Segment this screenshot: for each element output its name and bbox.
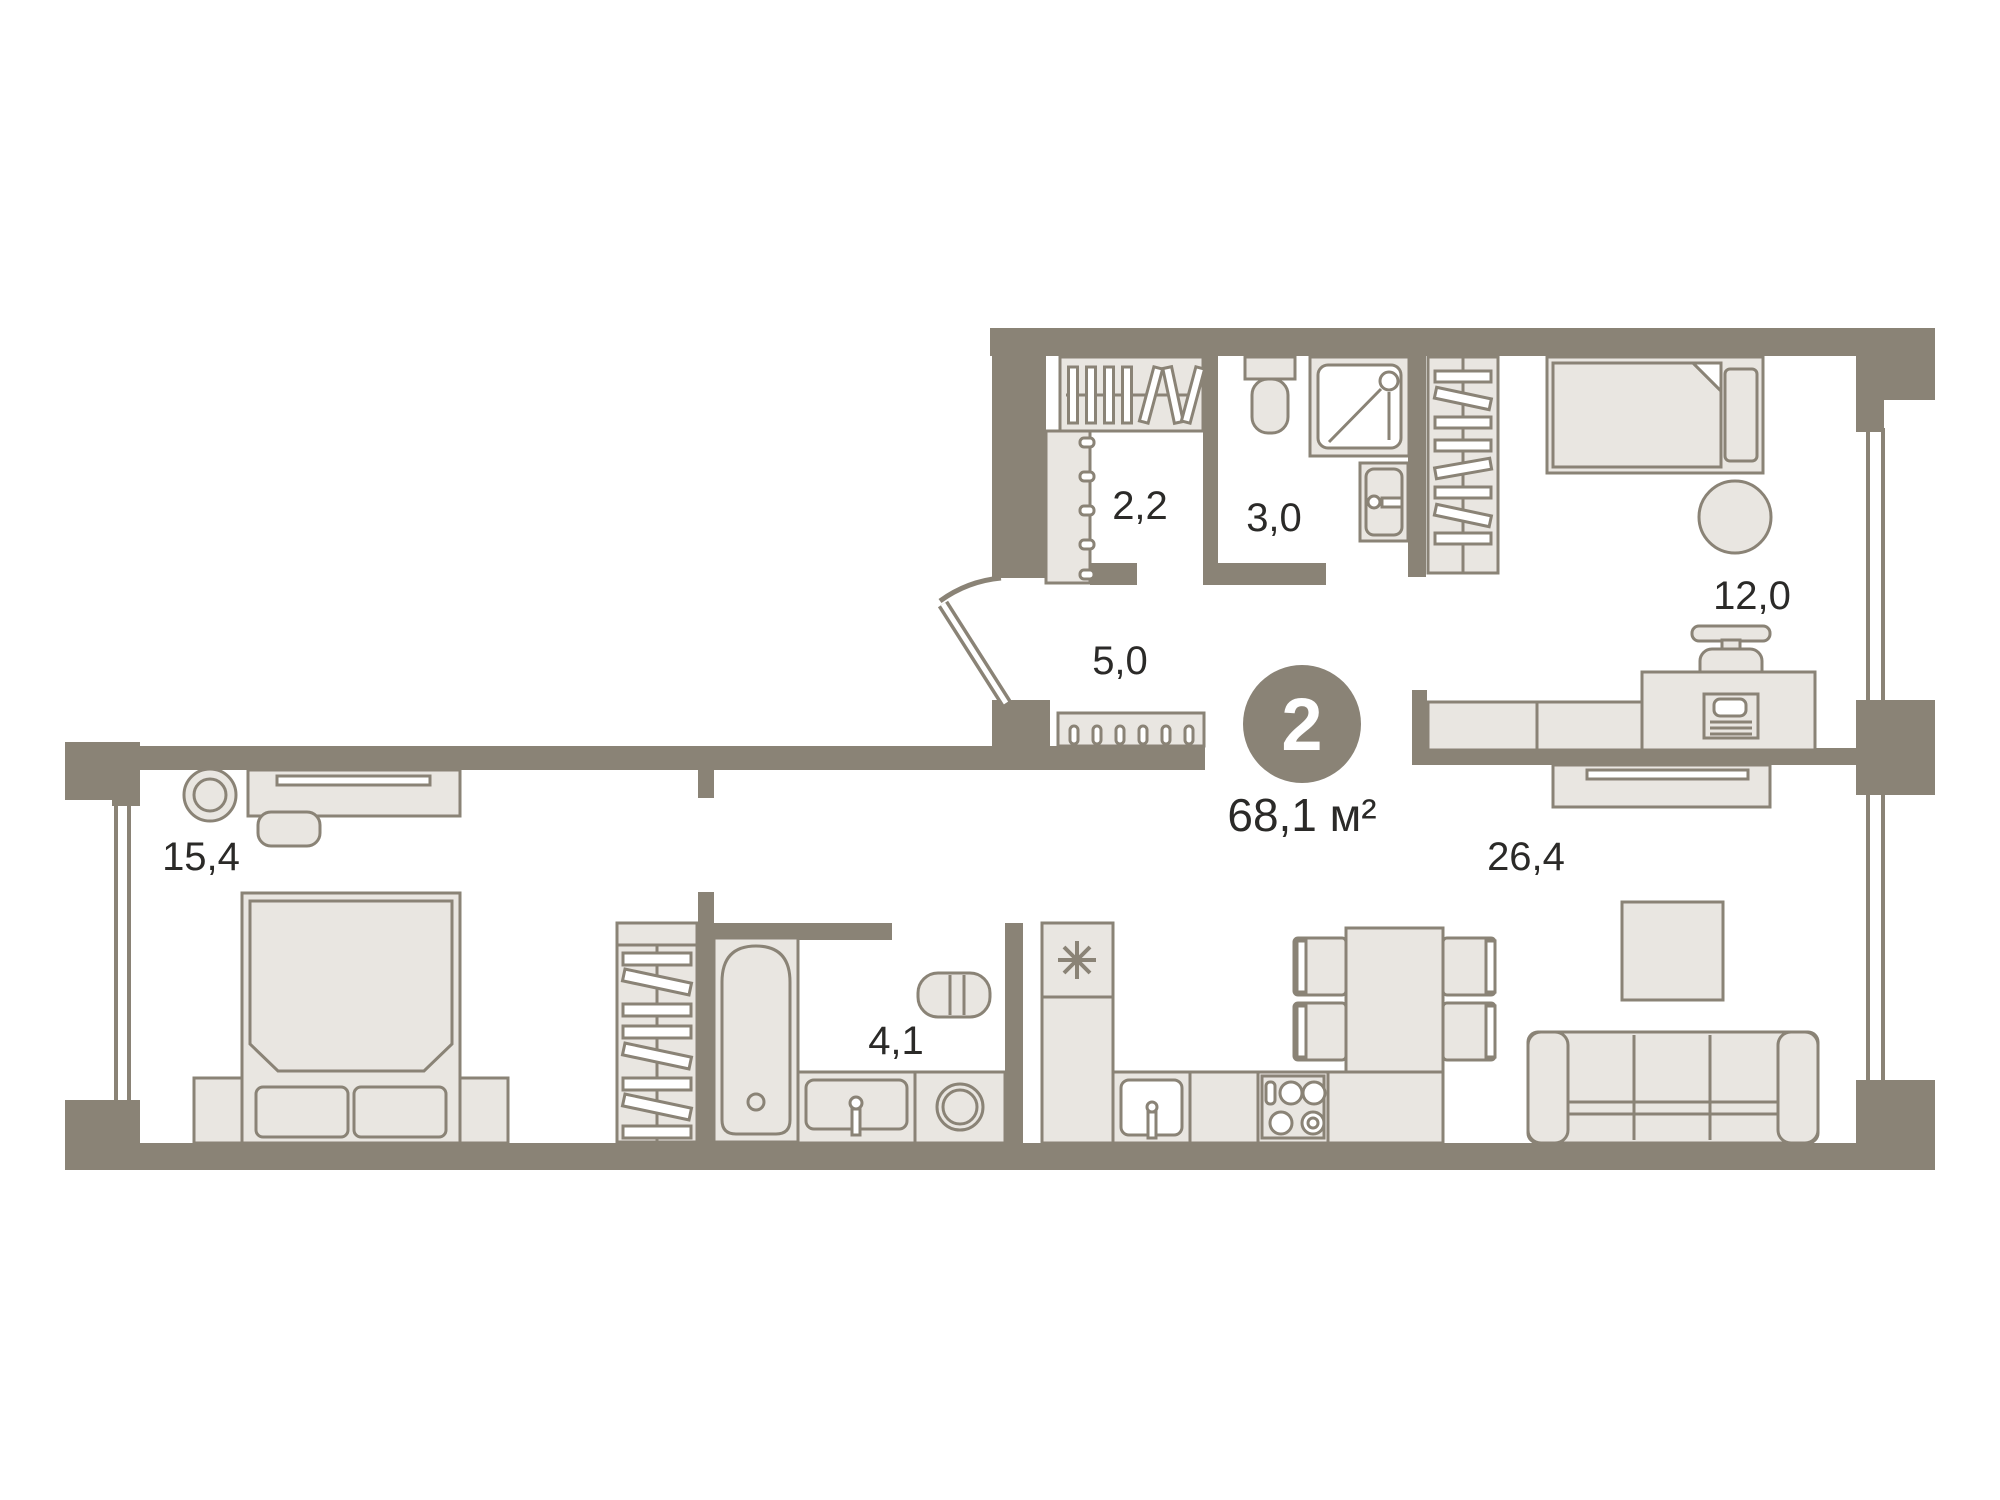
total-area: 68,1 м² xyxy=(1227,789,1376,841)
dining-chair-icon xyxy=(1443,938,1495,995)
shoe-bench-icon xyxy=(1058,713,1204,746)
room-area-label-bathroom: 4,1 xyxy=(868,1019,924,1063)
room-area-label-master-bedroom: 15,4 xyxy=(162,835,240,879)
room-area-label-hallway: 5,0 xyxy=(1092,639,1148,683)
fridge-icon xyxy=(1042,923,1113,1143)
plan-badge: 2 68,1 м² xyxy=(1227,665,1376,841)
dining-chair-icon xyxy=(1443,1003,1495,1060)
double-bed-icon xyxy=(242,893,460,1143)
bathroom-sink-icon xyxy=(798,1072,915,1143)
washbasin-icon xyxy=(1360,463,1408,541)
room-area-label-bedroom: 12,0 xyxy=(1713,574,1791,618)
stove-icon xyxy=(1262,1076,1325,1138)
ottoman-icon xyxy=(1622,902,1723,1000)
towel-dryer-icon xyxy=(918,973,990,1017)
room-area-label-living-kitchen: 26,4 xyxy=(1487,835,1565,879)
shower-icon xyxy=(1310,357,1409,456)
window-bedroom xyxy=(1868,428,1883,702)
plant-icon xyxy=(184,769,236,821)
entrance-door-icon xyxy=(940,578,1006,703)
wardrobe-icon xyxy=(617,923,697,1142)
dining-table-icon xyxy=(1346,928,1443,1072)
dining-chair-icon xyxy=(1294,938,1346,995)
desk-icon xyxy=(1642,672,1815,750)
clothes-rail-icon xyxy=(1060,357,1205,431)
nightstand-icon xyxy=(460,1078,508,1143)
window-left xyxy=(116,800,129,1102)
window-bench-icon xyxy=(1428,702,1642,750)
tv-stand-icon xyxy=(1553,765,1770,807)
room-area-label-wc: 3,0 xyxy=(1246,496,1302,540)
pouf-icon xyxy=(1699,481,1771,553)
bathtub-icon xyxy=(714,938,798,1142)
sofa-icon xyxy=(1528,1032,1818,1143)
washing-machine-icon xyxy=(915,1072,1005,1143)
desk-icon xyxy=(248,770,460,816)
window-living xyxy=(1868,795,1883,1082)
single-bed-icon xyxy=(1547,357,1763,473)
nightstand-icon xyxy=(194,1078,242,1143)
coat-hooks-icon xyxy=(1046,431,1094,583)
room-area-label-closet: 2,2 xyxy=(1112,484,1168,528)
kitchen-sink-icon xyxy=(1121,1080,1182,1138)
toilet-icon xyxy=(1245,357,1295,433)
dining-chair-icon xyxy=(1294,1003,1346,1060)
desk-chair-icon xyxy=(258,812,320,846)
rooms-count: 2 xyxy=(1281,683,1322,766)
floor-plan-page: 2,2 3,0 5,0 12,0 15,4 4,1 26,4 2 68,1 м² xyxy=(0,0,2000,1500)
wardrobe-icon xyxy=(1428,357,1498,573)
floor-plan: 2,2 3,0 5,0 12,0 15,4 4,1 26,4 2 68,1 м² xyxy=(0,0,2000,1500)
